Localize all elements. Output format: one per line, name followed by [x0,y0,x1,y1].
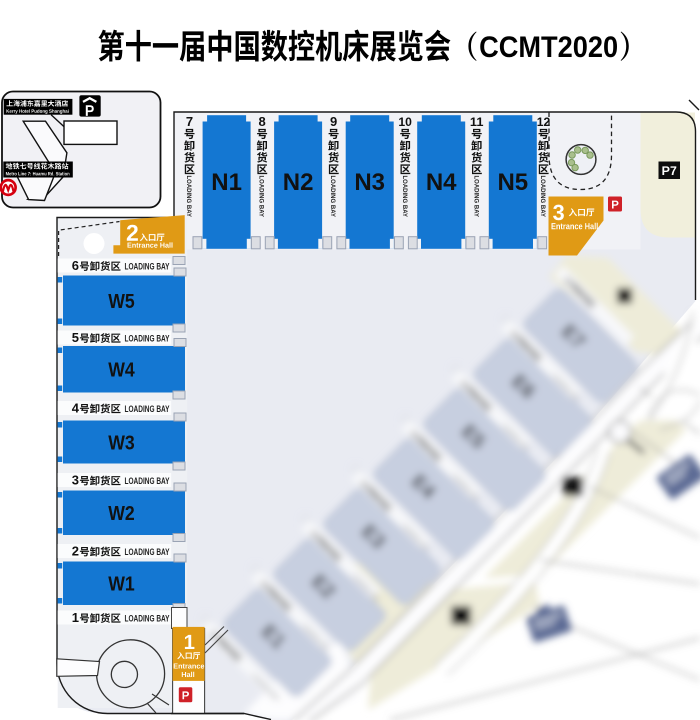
svg-text:CCMT2020: CCMT2020 [479,31,618,64]
svg-text:LOADING BAY: LOADING BAY [125,333,171,343]
svg-text:2: 2 [72,544,79,559]
svg-text:LOADING BAY: LOADING BAY [472,176,479,218]
svg-text:W2: W2 [108,502,135,525]
svg-text:6: 6 [72,258,79,273]
svg-text:N5: N5 [497,169,528,196]
svg-text:4: 4 [72,401,80,416]
svg-text:N2: N2 [283,169,314,196]
svg-text:12: 12 [537,117,551,129]
svg-text:W1: W1 [108,573,135,596]
svg-text:LOADING BAY: LOADING BAY [539,176,546,218]
svg-text:LOADING BAY: LOADING BAY [125,476,171,486]
svg-text:11: 11 [470,117,484,129]
svg-text:W4: W4 [108,359,135,382]
svg-text:10: 10 [398,117,412,129]
svg-text:3: 3 [72,473,79,488]
svg-text:9: 9 [330,114,337,129]
svg-text:LOADING BAY: LOADING BAY [125,547,171,557]
svg-text:7: 7 [186,114,193,129]
svg-text:8: 8 [258,114,265,129]
svg-text:LOADING BAY: LOADING BAY [125,404,171,414]
svg-text:LOADING BAY: LOADING BAY [258,176,265,218]
svg-text:LOADING BAY: LOADING BAY [125,261,171,271]
svg-text:N1: N1 [211,169,242,196]
svg-text:N4: N4 [426,169,457,196]
svg-text:1: 1 [72,610,79,625]
svg-text:LOADING BAY: LOADING BAY [185,176,192,218]
svg-text:5: 5 [72,330,79,345]
svg-text:LOADING BAY: LOADING BAY [401,176,408,218]
svg-text:W5: W5 [108,290,135,313]
svg-text:LOADING BAY: LOADING BAY [329,176,336,218]
svg-text:LOADING BAY: LOADING BAY [125,613,171,623]
svg-text:N3: N3 [354,169,385,196]
svg-text:W3: W3 [108,431,135,454]
